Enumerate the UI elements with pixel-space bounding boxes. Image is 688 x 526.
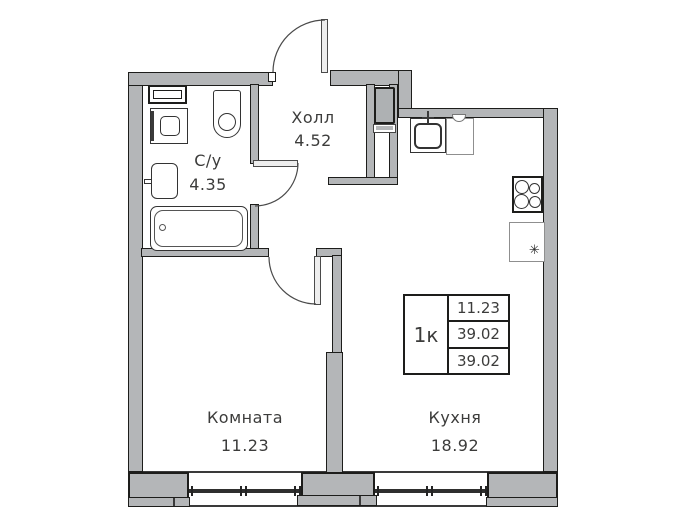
fridge-snowflake-icon: ✳ (529, 243, 540, 258)
sill-left (128, 497, 190, 507)
apartment-info-table: 1к 11.23 39.02 39.02 (403, 294, 510, 375)
partition-upper (332, 255, 342, 353)
room-label-kitchen: Кухня 18.92 (395, 408, 515, 455)
stove-burner (529, 196, 541, 208)
entrance-door-arc (273, 20, 325, 72)
shaft-shelf-strip (376, 126, 393, 130)
wall-right (543, 108, 558, 472)
pier-left (128, 472, 189, 499)
kitchen-sink-basin (414, 123, 442, 149)
apartment-areas: 11.23 39.02 39.02 (449, 296, 508, 373)
window-tick (240, 486, 247, 496)
entrance-door-leaf (321, 19, 328, 73)
partition-lower (326, 352, 343, 473)
apartment-area-living: 11.23 (449, 296, 508, 320)
room-label-hall: Холл 4.52 (258, 108, 368, 150)
sill-right (486, 497, 558, 507)
room-area: 4.35 (168, 175, 248, 194)
room-area: 18.92 (395, 436, 515, 455)
shaft-appliance (374, 87, 395, 124)
kitchen-counter (446, 118, 474, 155)
bathroom-wall-right-lower (250, 204, 259, 250)
sill-center (297, 495, 377, 506)
wall-left (128, 72, 143, 472)
apartment-area-total: 39.02 (449, 320, 508, 346)
vent-duct-inner (153, 90, 182, 99)
stove-burner (529, 183, 540, 194)
shaft-wall-bottom (328, 177, 398, 185)
pier-right (487, 472, 558, 499)
room-label-room: Комната 11.23 (185, 408, 305, 455)
sill-left-seam (173, 498, 175, 506)
bathtub-drain (159, 224, 166, 231)
toilet-bowl (218, 113, 236, 131)
washing-machine-door (160, 116, 180, 136)
bathroom-door-arc (255, 163, 298, 206)
room-name: Комната (185, 408, 305, 427)
bathtub-inner (154, 210, 243, 247)
room-door-arc (269, 257, 316, 304)
stove-burner (514, 194, 529, 209)
room-area: 11.23 (185, 436, 305, 455)
room-door-leaf (314, 256, 321, 305)
room-name: Холл (258, 108, 368, 127)
sill-center-seam (359, 496, 361, 505)
apartment-area-overall: 39.02 (449, 347, 508, 373)
washing-machine-pipe (151, 111, 154, 141)
room-label-bathroom: С/у 4.35 (168, 151, 248, 194)
bathroom-sink-faucet (144, 179, 152, 184)
floor-plan: ✳ Холл 4.52 С/у 4.35 Комната 11.23 Кухня… (0, 0, 688, 526)
stove-burner (515, 180, 529, 194)
window-tick (426, 486, 433, 496)
kitchen-faucet-bar (422, 117, 434, 119)
bathroom-door-leaf (253, 160, 298, 167)
room-name: Кухня (395, 408, 515, 427)
room-area: 4.52 (258, 131, 368, 150)
entrance-jamb (268, 72, 276, 82)
apartment-type: 1к (405, 296, 449, 373)
room-name: С/у (168, 151, 248, 170)
window-tick (480, 486, 487, 496)
